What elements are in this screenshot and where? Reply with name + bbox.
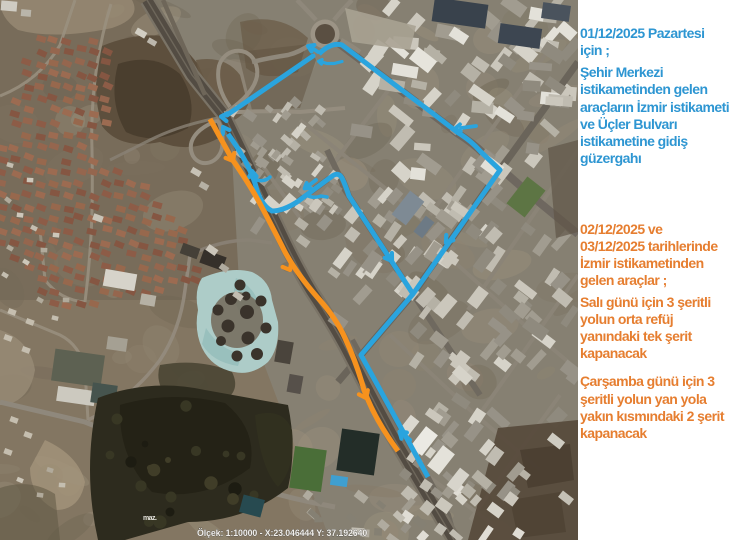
svg-text:Ölçek: 1:10000 - X:23.046444 Y: Ölçek: 1:10000 - X:23.046444 Y: 37.19264… <box>197 528 367 538</box>
svg-text:maz.: maz. <box>143 515 157 522</box>
